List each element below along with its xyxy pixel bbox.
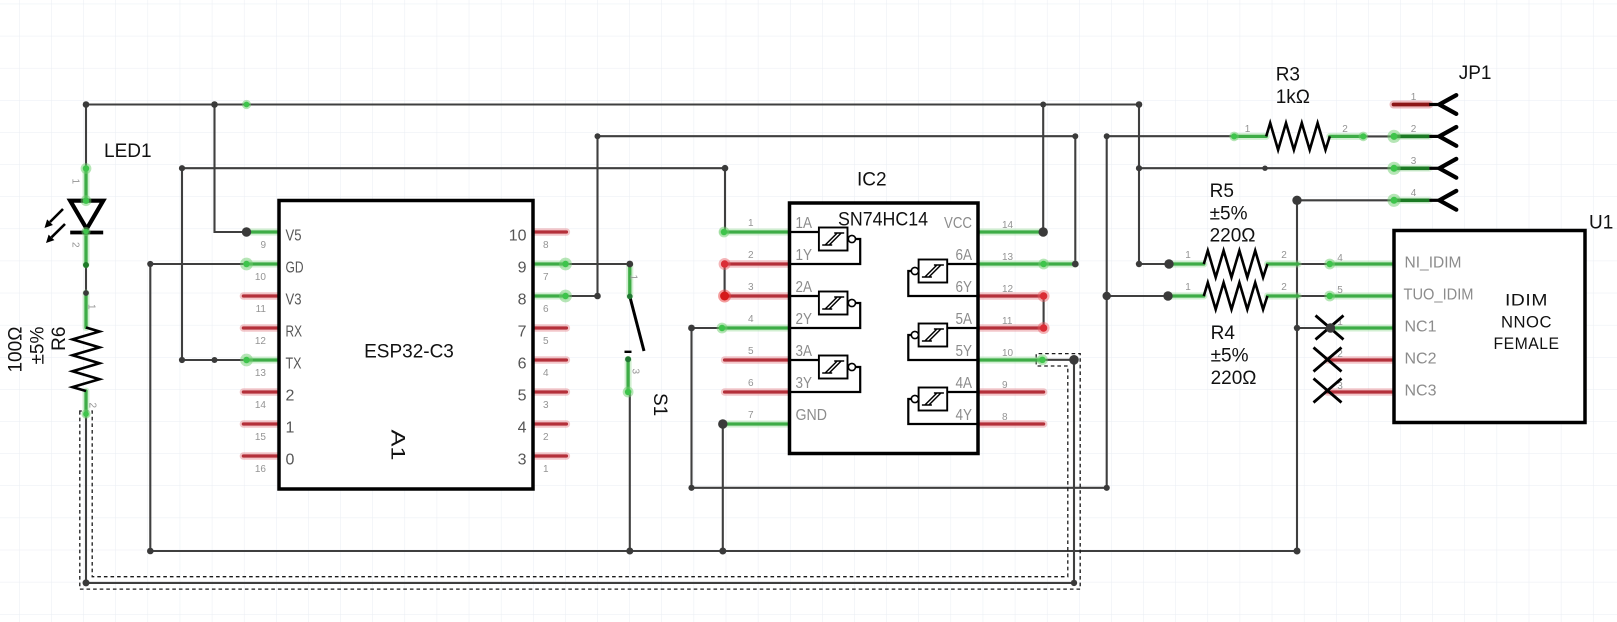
svg-text:R4: R4 bbox=[1211, 323, 1236, 344]
svg-text:1: 1 bbox=[286, 420, 295, 437]
svg-text:IDIM: IDIM bbox=[1505, 292, 1548, 310]
svg-text:5: 5 bbox=[518, 388, 527, 405]
svg-text:R3: R3 bbox=[1276, 65, 1300, 86]
svg-text:1A: 1A bbox=[796, 215, 813, 232]
svg-text:6Y: 6Y bbox=[956, 279, 973, 296]
svg-text:12: 12 bbox=[255, 336, 267, 347]
svg-text:9: 9 bbox=[518, 260, 527, 277]
svg-text:2: 2 bbox=[1342, 124, 1348, 135]
svg-text:GND: GND bbox=[796, 407, 828, 424]
svg-text:11: 11 bbox=[1002, 316, 1013, 327]
svg-text:100Ω: 100Ω bbox=[6, 327, 27, 373]
svg-text:2: 2 bbox=[1281, 282, 1287, 293]
svg-text:3A: 3A bbox=[796, 343, 813, 360]
svg-text:5: 5 bbox=[543, 336, 549, 347]
svg-text:S1: S1 bbox=[649, 393, 670, 416]
svg-text:3: 3 bbox=[543, 400, 549, 411]
svg-text:14: 14 bbox=[255, 400, 267, 411]
svg-text:4: 4 bbox=[1337, 253, 1343, 264]
svg-text:4Y: 4Y bbox=[956, 407, 973, 424]
svg-text:NNOC: NNOC bbox=[1501, 313, 1552, 331]
svg-text:5A: 5A bbox=[956, 311, 973, 328]
svg-text:GD: GD bbox=[286, 260, 304, 277]
svg-text:10: 10 bbox=[1002, 348, 1014, 359]
svg-text:R6: R6 bbox=[49, 327, 70, 351]
svg-text:1: 1 bbox=[70, 179, 81, 185]
svg-text:2: 2 bbox=[1281, 250, 1287, 261]
svg-text:3: 3 bbox=[518, 452, 527, 469]
svg-text:1Y: 1Y bbox=[796, 247, 813, 264]
svg-text:±5%: ±5% bbox=[1210, 203, 1248, 224]
svg-text:NC1: NC1 bbox=[1405, 319, 1437, 336]
svg-text:2: 2 bbox=[87, 403, 98, 409]
svg-text:220Ω: 220Ω bbox=[1210, 225, 1256, 246]
svg-text:1: 1 bbox=[543, 464, 549, 475]
svg-text:220Ω: 220Ω bbox=[1211, 368, 1257, 389]
svg-text:1: 1 bbox=[1411, 92, 1417, 103]
svg-text:16: 16 bbox=[255, 464, 267, 475]
svg-text:3: 3 bbox=[1411, 156, 1417, 167]
svg-text:R5: R5 bbox=[1210, 181, 1234, 202]
svg-text:1: 1 bbox=[1185, 250, 1191, 261]
svg-text:2: 2 bbox=[70, 242, 81, 248]
svg-text:SN74HC14: SN74HC14 bbox=[838, 210, 928, 231]
svg-text:2A: 2A bbox=[796, 279, 813, 296]
svg-text:5: 5 bbox=[1337, 285, 1343, 296]
svg-text:2: 2 bbox=[748, 250, 754, 261]
svg-text:NC3: NC3 bbox=[1405, 383, 1437, 400]
svg-text:2: 2 bbox=[1411, 124, 1417, 135]
svg-text:TUO_IDIM: TUO_IDIM bbox=[1404, 287, 1474, 304]
svg-text:V3: V3 bbox=[286, 292, 302, 309]
svg-text:6: 6 bbox=[543, 304, 549, 315]
svg-text:LED1: LED1 bbox=[104, 141, 152, 162]
svg-text:FEMALE: FEMALE bbox=[1494, 335, 1560, 353]
svg-text:7: 7 bbox=[518, 324, 527, 341]
svg-text:V5: V5 bbox=[286, 228, 302, 245]
svg-text:IC2: IC2 bbox=[857, 170, 887, 191]
svg-text:6: 6 bbox=[518, 356, 527, 373]
svg-text:8: 8 bbox=[543, 240, 549, 251]
svg-text:2: 2 bbox=[543, 432, 549, 443]
svg-text:NI_IDIM: NI_IDIM bbox=[1405, 255, 1462, 272]
svg-text:4: 4 bbox=[748, 314, 754, 325]
svg-text:4: 4 bbox=[518, 420, 527, 437]
svg-text:8: 8 bbox=[518, 292, 527, 309]
svg-text:9: 9 bbox=[1002, 380, 1008, 391]
svg-text:A1: A1 bbox=[387, 430, 408, 461]
svg-text:13: 13 bbox=[1002, 252, 1014, 263]
svg-text:±5%: ±5% bbox=[27, 326, 48, 364]
svg-text:8: 8 bbox=[1002, 412, 1008, 423]
svg-text:3Y: 3Y bbox=[796, 375, 813, 392]
svg-text:11: 11 bbox=[256, 304, 267, 315]
svg-text:2Y: 2Y bbox=[796, 311, 813, 328]
svg-text:0: 0 bbox=[286, 452, 295, 469]
svg-text:4: 4 bbox=[543, 368, 549, 379]
svg-text:13: 13 bbox=[255, 368, 267, 379]
svg-text:1: 1 bbox=[1245, 124, 1251, 135]
svg-text:1: 1 bbox=[86, 304, 97, 310]
svg-text:9: 9 bbox=[260, 240, 266, 251]
svg-text:TX: TX bbox=[286, 356, 302, 373]
svg-text:6: 6 bbox=[748, 378, 754, 389]
svg-text:±5%: ±5% bbox=[1211, 346, 1249, 367]
svg-text:U1: U1 bbox=[1589, 213, 1613, 234]
svg-text:3: 3 bbox=[748, 282, 754, 293]
svg-text:1: 1 bbox=[628, 275, 639, 281]
svg-text:3: 3 bbox=[630, 369, 641, 375]
svg-text:12: 12 bbox=[1002, 284, 1014, 295]
svg-text:ESP32-C3: ESP32-C3 bbox=[364, 342, 454, 363]
svg-text:RX: RX bbox=[286, 324, 303, 341]
svg-text:JP1: JP1 bbox=[1459, 63, 1492, 84]
svg-text:1: 1 bbox=[748, 218, 754, 229]
svg-text:4: 4 bbox=[1411, 188, 1417, 199]
svg-text:2: 2 bbox=[286, 388, 295, 405]
svg-text:4A: 4A bbox=[956, 375, 973, 392]
svg-text:VCC: VCC bbox=[944, 215, 972, 232]
svg-text:10: 10 bbox=[255, 272, 267, 283]
svg-text:NC2: NC2 bbox=[1405, 351, 1437, 368]
svg-text:1kΩ: 1kΩ bbox=[1276, 87, 1310, 108]
svg-text:1: 1 bbox=[1185, 282, 1191, 293]
svg-text:14: 14 bbox=[1002, 220, 1014, 231]
svg-text:15: 15 bbox=[255, 432, 267, 443]
svg-text:7: 7 bbox=[748, 410, 754, 421]
svg-text:5: 5 bbox=[748, 346, 754, 357]
svg-text:7: 7 bbox=[543, 272, 549, 283]
svg-text:5Y: 5Y bbox=[956, 343, 973, 360]
svg-text:6A: 6A bbox=[956, 247, 973, 264]
svg-text:10: 10 bbox=[509, 228, 527, 245]
